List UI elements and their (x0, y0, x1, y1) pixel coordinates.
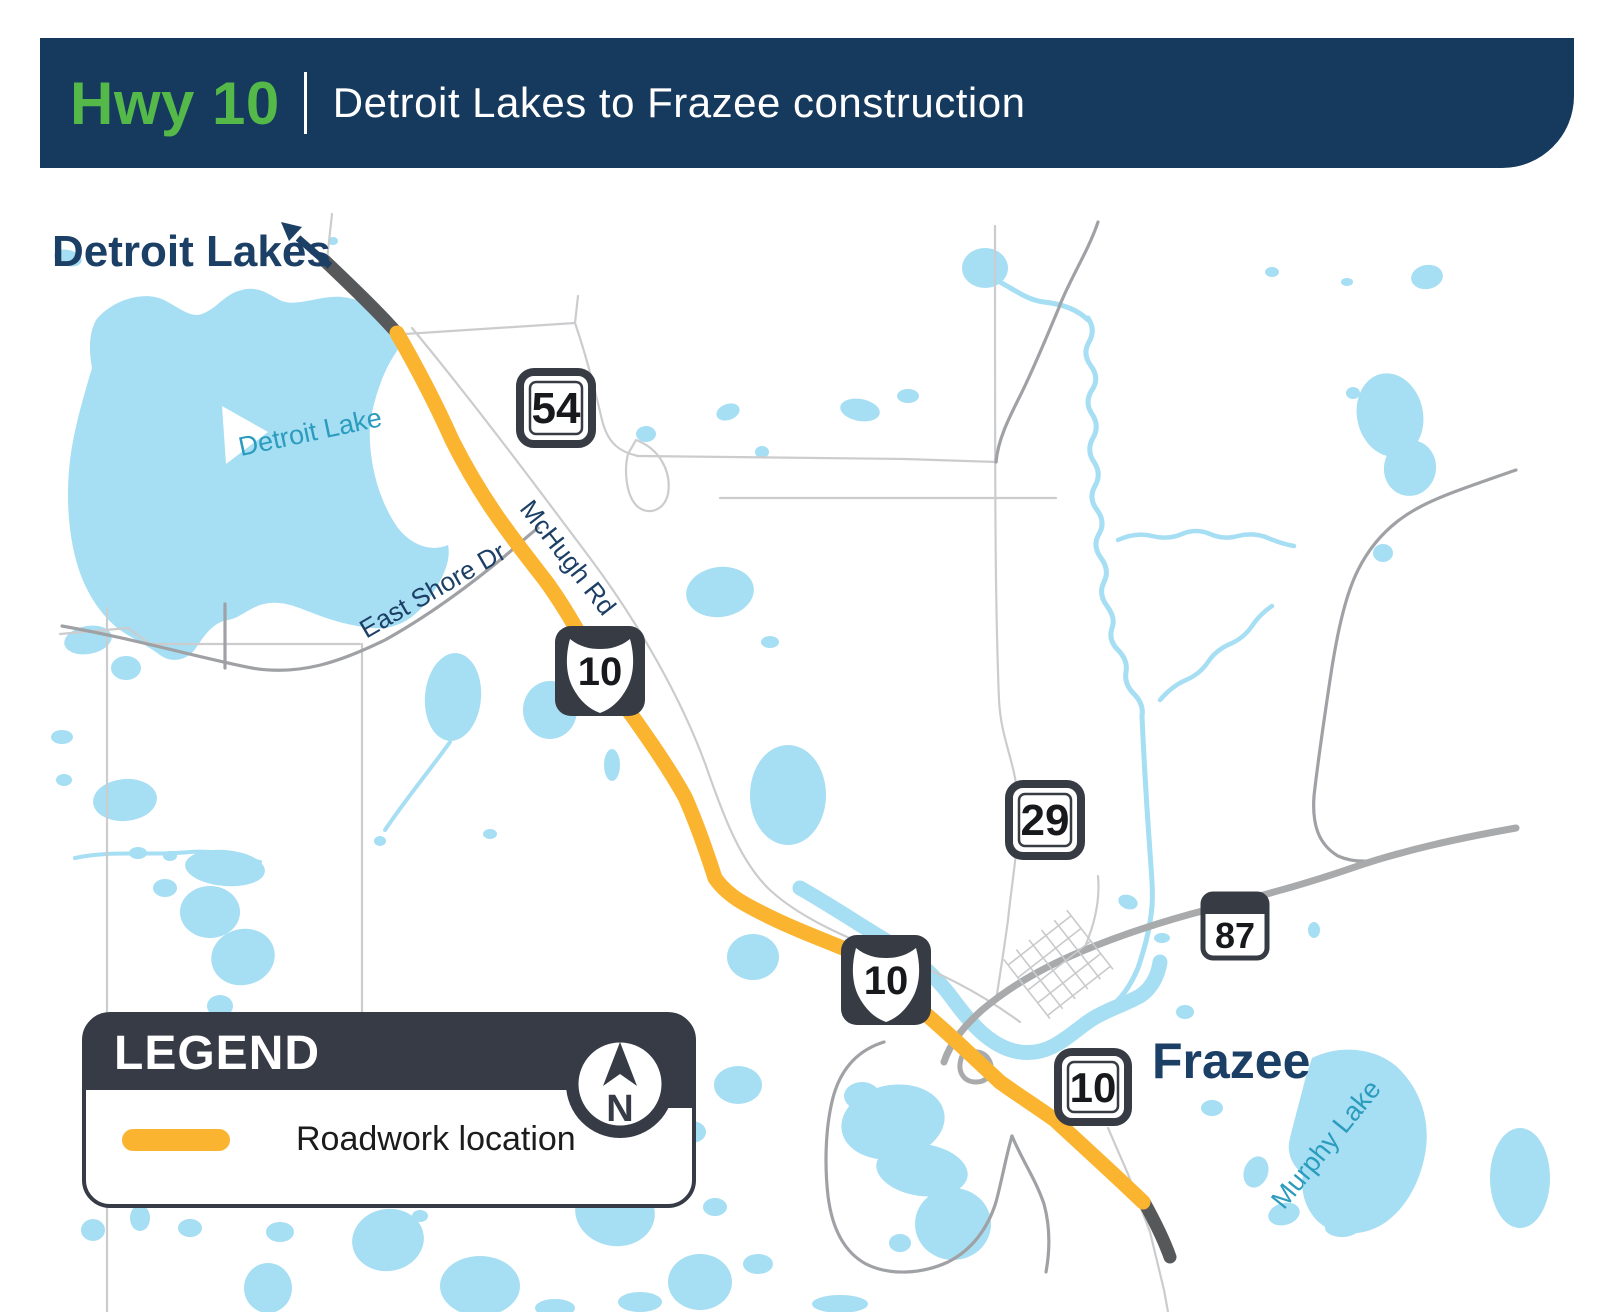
shield-us10-north-number: 10 (578, 650, 623, 694)
lake (1176, 1005, 1194, 1019)
lake (81, 1219, 105, 1241)
lake (535, 1299, 575, 1312)
shield-us10-mid: 10 (841, 935, 931, 1025)
lake (130, 1205, 150, 1231)
shield-29-number: 29 (1021, 796, 1070, 845)
stream (1160, 606, 1272, 700)
shield-us10-mid-number: 10 (864, 959, 909, 1003)
lake (714, 400, 742, 423)
shield-54: 54 (520, 372, 592, 444)
shield-87-number: 87 (1215, 915, 1255, 956)
stream (385, 742, 450, 830)
lake (761, 636, 779, 648)
lake (750, 745, 826, 845)
lake (1325, 1219, 1359, 1237)
lake (812, 1295, 868, 1312)
lake (1116, 892, 1140, 912)
legend-title: LEGEND (114, 1026, 320, 1081)
lake (915, 1188, 991, 1260)
lake (440, 1256, 520, 1312)
lake (1490, 1128, 1550, 1228)
lake (1265, 267, 1279, 277)
lake (1373, 544, 1393, 562)
lake (755, 446, 769, 458)
north-compass: N (558, 1022, 682, 1146)
lake (180, 886, 240, 938)
lake (51, 730, 73, 744)
legend-panel: LEGEND N Roadwork location (82, 1012, 696, 1208)
stream (1118, 531, 1294, 546)
lake (604, 749, 620, 781)
roadwork-swatch (122, 1129, 230, 1151)
roadwork-label: Roadwork location (296, 1120, 576, 1159)
frazee-label: Frazee (1152, 1033, 1310, 1089)
lake (421, 651, 484, 744)
lake (111, 656, 141, 680)
mchugh-road-line (412, 328, 1020, 1022)
legend-item-roadwork: Roadwork location (122, 1120, 576, 1159)
lake (714, 1066, 762, 1104)
lake (178, 1219, 202, 1237)
lake (266, 1222, 294, 1242)
lake (1201, 1100, 1223, 1116)
compass-n-label: N (606, 1088, 633, 1130)
lake (483, 829, 497, 839)
lake (1154, 933, 1170, 943)
lake (1239, 1153, 1272, 1191)
shield-10-frazee-number: 10 (1070, 1064, 1117, 1111)
lake (668, 1254, 732, 1310)
shield-87: 87 (1203, 894, 1267, 958)
lake (412, 1210, 428, 1222)
header-subtitle: Detroit Lakes to Frazee construction (333, 79, 1026, 127)
lake (618, 1292, 662, 1312)
lake (374, 836, 386, 846)
lake (703, 1198, 727, 1216)
shield-us10-north: 10 (555, 626, 645, 716)
lake (743, 1254, 773, 1274)
lake (844, 1082, 880, 1110)
map-page: 54 10 29 10 10 87 Detroit Lakes (0, 0, 1600, 1312)
lake (56, 774, 72, 786)
lake (1346, 387, 1360, 399)
lake (153, 879, 177, 897)
lake (1341, 278, 1353, 286)
lake (91, 776, 158, 823)
route-title: Hwy 10 (70, 69, 280, 138)
shield-29: 29 (1009, 784, 1081, 856)
shield-10-frazee: 10 (1058, 1052, 1128, 1122)
header-banner: Hwy 10 Detroit Lakes to Frazee construct… (40, 38, 1574, 168)
lake (636, 426, 656, 442)
lake (244, 1263, 292, 1312)
lake (727, 934, 779, 980)
shield-54-number: 54 (532, 384, 581, 433)
lake (1409, 262, 1445, 291)
title-divider (304, 72, 307, 134)
stream (1000, 282, 1088, 320)
lake (889, 1234, 911, 1252)
lake (683, 563, 757, 622)
lake (897, 389, 919, 403)
lake (838, 396, 881, 425)
lake (1308, 922, 1320, 938)
